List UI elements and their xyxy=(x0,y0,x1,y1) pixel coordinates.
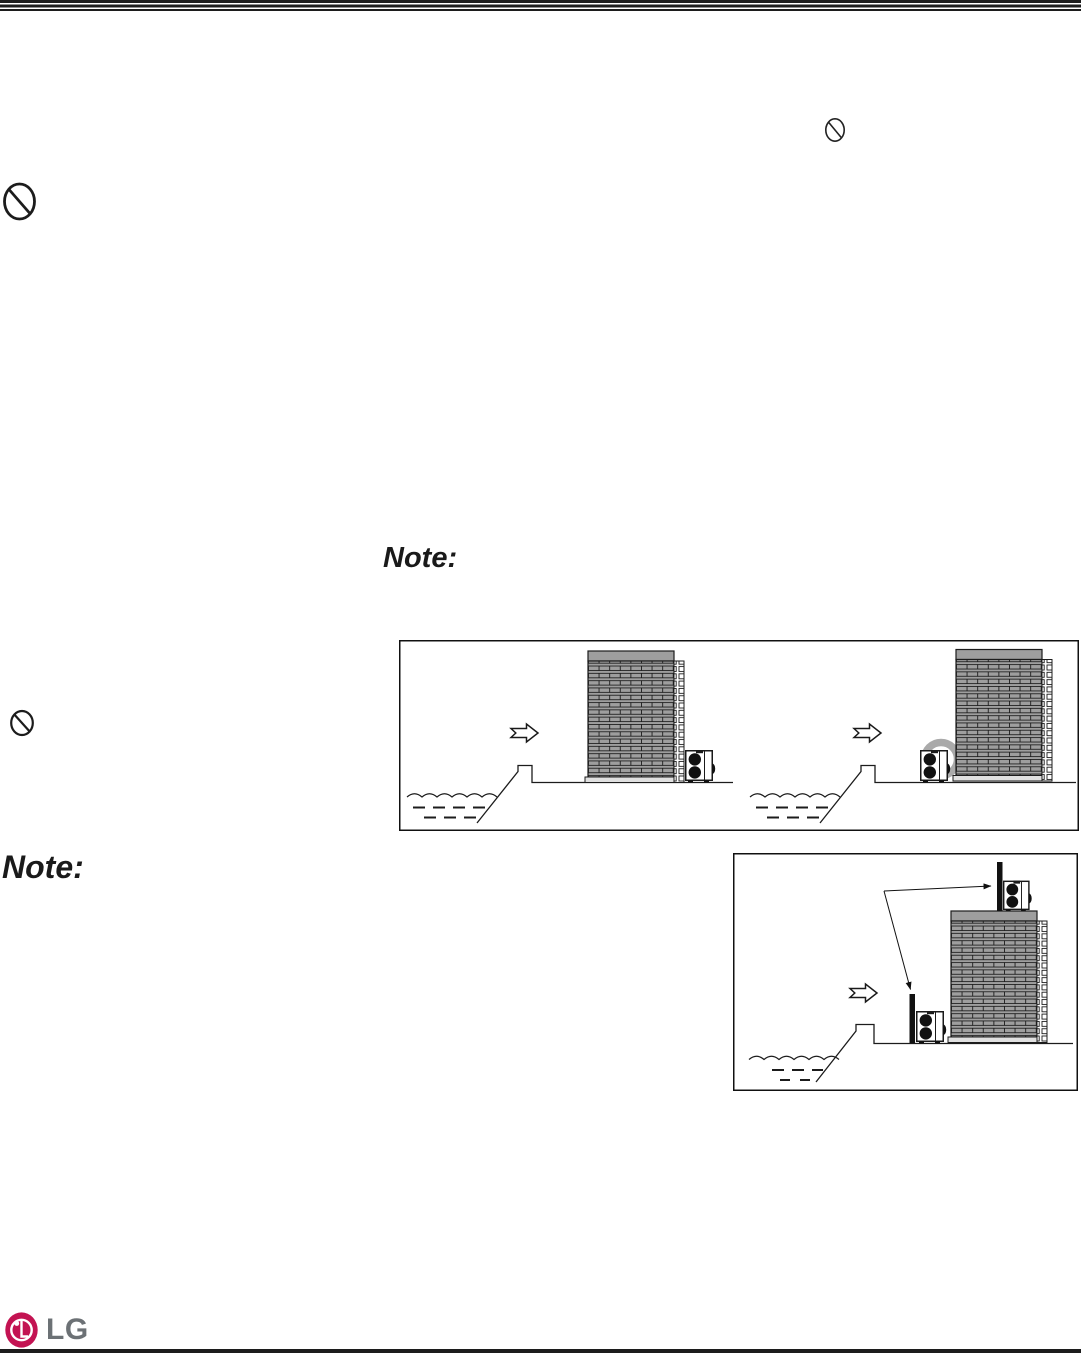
prohibition-slash xyxy=(829,123,841,138)
prohibition-icon xyxy=(9,709,36,738)
protection-wall-roof xyxy=(997,862,1003,911)
seawind-protection-wall-figure xyxy=(733,853,1078,1091)
note-label: Note: xyxy=(383,544,457,573)
seawind-comparison-figure xyxy=(399,640,1079,831)
prohibition-slash xyxy=(10,190,30,213)
note-label: Note: xyxy=(2,851,84,883)
prohibition-icon xyxy=(824,117,846,143)
manual-page: Note: Note: xyxy=(0,0,1081,1353)
lg-logo-icon xyxy=(4,1311,41,1349)
lg-logo: LG xyxy=(4,1311,89,1349)
prohibition-slash xyxy=(15,715,29,731)
lg-logo-text: LG xyxy=(46,1315,89,1345)
bottom-rule xyxy=(0,1349,1081,1353)
prohibition-icon xyxy=(2,182,38,222)
lg-emblem-dot xyxy=(14,1321,19,1326)
top-triple-rule xyxy=(0,0,1081,11)
protection-wall-ground xyxy=(910,994,916,1043)
